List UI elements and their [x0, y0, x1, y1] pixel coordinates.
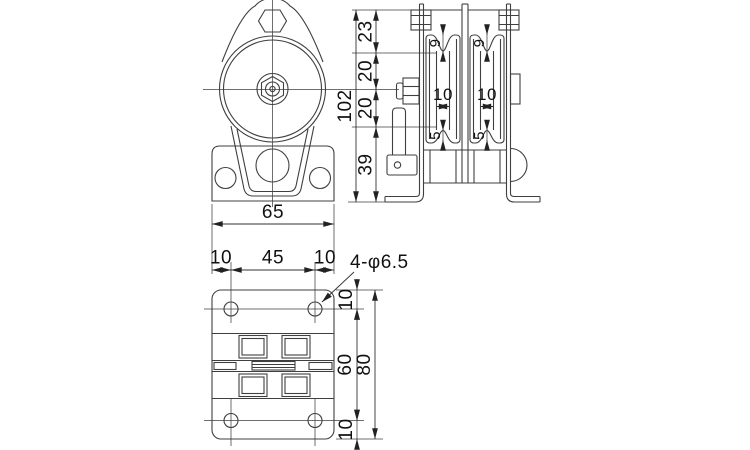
dim-flange-left: 5 [427, 131, 444, 140]
dome-end [511, 149, 528, 182]
plan-view: 10 45 10 4-φ6.5 10 60 80 10 [204, 248, 409, 450]
dim-plan-hole-span: 45 [262, 248, 284, 269]
dim-plan-edge-right: 10 [314, 248, 336, 269]
dim-side-upper-mid: 20 [356, 60, 377, 82]
front-view-geometry [212, 0, 334, 201]
dim-plan-edge-left: 10 [210, 248, 232, 269]
top-bolt-nut-right [499, 10, 519, 30]
axle-boss-right [511, 74, 521, 104]
dim-side-bottom: 39 [356, 153, 377, 175]
dim-groove-depth-left: 9 [427, 39, 444, 48]
dim-side-lower-mid: 20 [356, 97, 377, 119]
base-hole-right [310, 168, 331, 189]
base-hole-left [215, 168, 236, 189]
depth-dimension-column: 10 60 80 10 [335, 279, 383, 449]
groove-width-dimensions: 10 10 [433, 85, 497, 107]
dim-flange-right: 5 [471, 131, 488, 140]
dim-side-top: 23 [356, 20, 377, 42]
dim-plan-bottom-offset: 10 [336, 418, 357, 440]
dim-overall-height: 102 [335, 89, 356, 122]
dim-plan-overall-depth: 80 [354, 353, 375, 375]
technical-drawing: 65 [0, 0, 750, 450]
dim-groove-width-right: 10 [477, 85, 497, 104]
height-dimension-column: 102 23 20 20 39 [335, 10, 437, 202]
dim-groove-width-left: 10 [433, 85, 453, 104]
hole-spacing-dimension: 10 45 10 [210, 248, 336, 271]
side-view-geometry [385, 4, 540, 202]
dim-plan-top-offset: 10 [336, 288, 357, 310]
dim-front-base-width: 65 [262, 202, 284, 223]
dim-groove-depth-right: 9 [471, 39, 488, 48]
plan-view-geometry [212, 290, 334, 439]
dim-plan-hole-pitch: 60 [335, 353, 356, 375]
swivel-arm [387, 108, 417, 175]
dim-holes-label: 4-φ6.5 [350, 252, 409, 273]
axle-nut-side [397, 78, 420, 104]
side-view: 9 9 10 10 5 5 [335, 4, 540, 202]
top-bolt-nut-left [411, 10, 431, 30]
